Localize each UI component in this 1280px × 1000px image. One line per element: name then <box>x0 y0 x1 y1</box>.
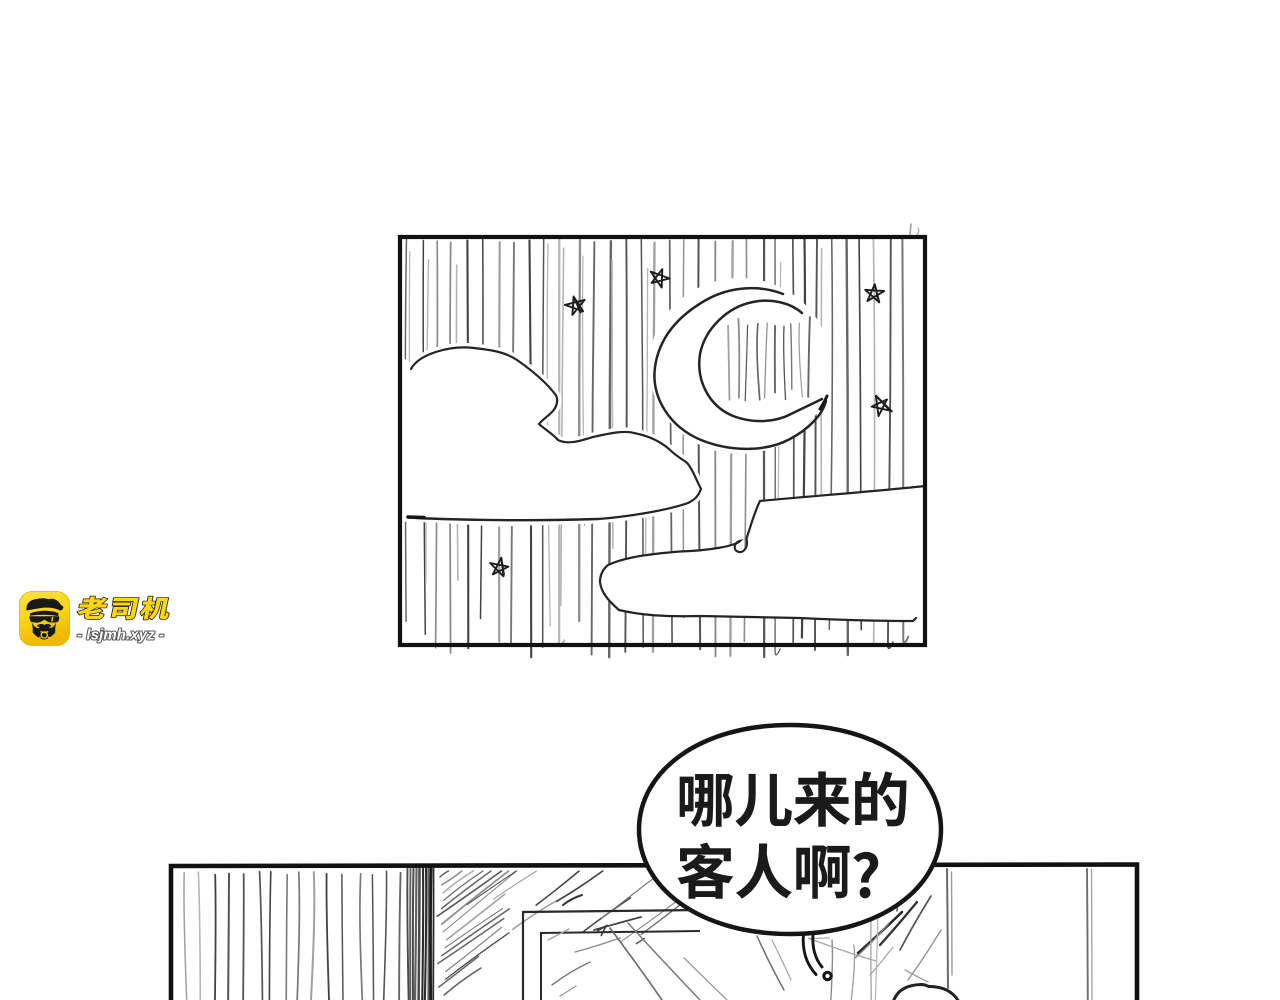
svg-text:- lsjmh.xyz -: - lsjmh.xyz - <box>77 627 164 644</box>
